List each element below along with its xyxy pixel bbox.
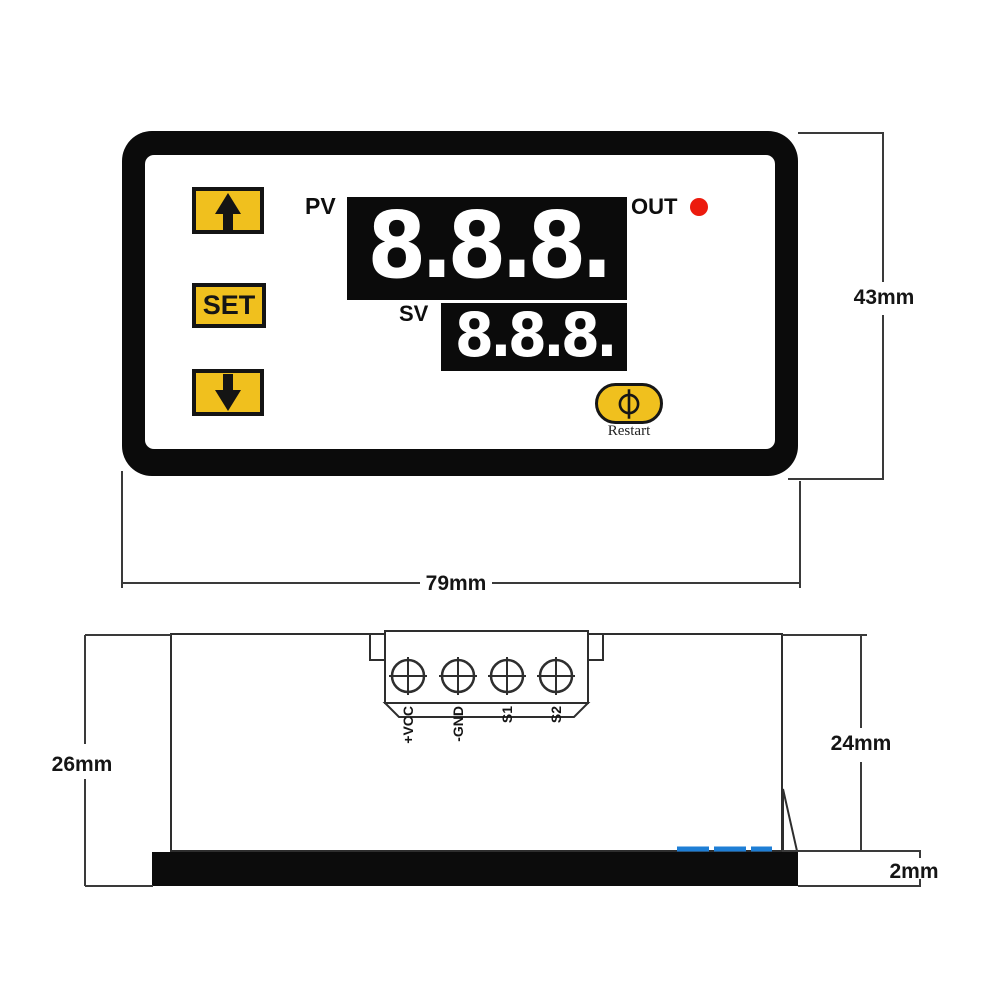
up-button — [192, 187, 264, 234]
terminal-label-vcc: +VCC — [400, 706, 416, 744]
arrow-down-icon — [211, 374, 245, 412]
mounting-clip — [783, 789, 797, 851]
sv-display-digits: 8.8.8. — [454, 305, 613, 366]
sv-label: SV — [399, 301, 428, 327]
terminal-label-gnd: -GND — [450, 706, 466, 742]
dimension-label-43mm: 43mm — [854, 286, 915, 309]
pv-display: 8.8.8. — [347, 197, 627, 300]
dimension-43mm: 43mm — [788, 133, 914, 479]
pv-display-digits: 8.8.8. — [367, 200, 607, 292]
dimension-label-2mm: 2mm — [889, 860, 938, 883]
led-dot-icon — [690, 198, 708, 216]
terminal-block-ear-right — [588, 634, 603, 660]
sv-display: 8.8.8. — [441, 303, 627, 371]
dimension-label-26mm: 26mm — [52, 753, 113, 776]
dimension-label-79mm: 79mm — [426, 572, 487, 595]
power-circle-icon — [616, 387, 642, 421]
dimension-79mm: 79mm — [122, 471, 800, 595]
pv-label: PV — [305, 193, 336, 220]
terminal-block-ear-left — [370, 634, 385, 660]
restart-label: Restart — [585, 423, 673, 440]
dimension-24mm: 24mm — [782, 635, 891, 851]
side-view: +VCC -GND S1 S2 — [152, 631, 798, 886]
dimension-label-24mm: 24mm — [831, 732, 892, 755]
dimension-26mm: 26mm — [52, 635, 171, 886]
terminal-label-s2: S2 — [548, 706, 564, 723]
set-button: SET — [192, 283, 266, 328]
thermostat-dimension-diagram: 43mm 79mm — [0, 0, 1000, 1000]
dimension-2mm: 2mm — [782, 851, 939, 886]
down-button — [192, 369, 264, 416]
front-bezel-side — [152, 852, 798, 886]
out-label: OUT — [631, 194, 677, 220]
arrow-up-icon — [211, 192, 245, 230]
restart-button — [595, 383, 663, 424]
terminal-label-s1: S1 — [499, 706, 515, 723]
